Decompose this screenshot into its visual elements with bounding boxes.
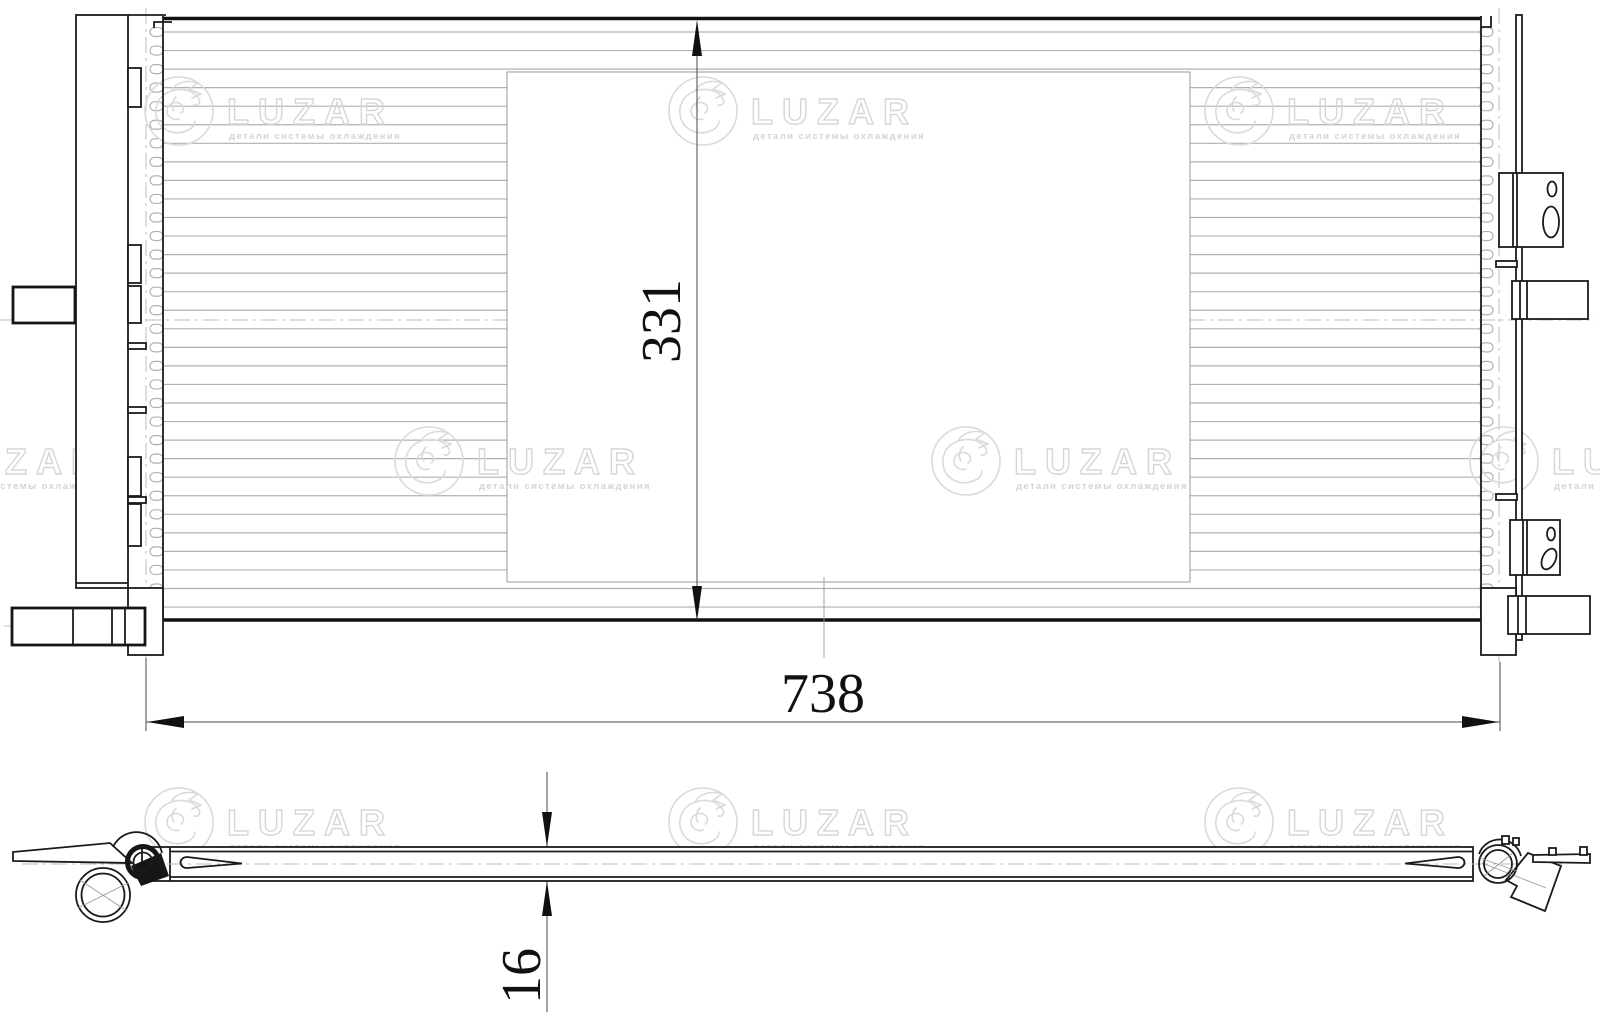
width-dim-label: 738 (781, 663, 865, 725)
dimension-thickness-16: 16 (491, 772, 553, 1012)
fin-cap-right (1480, 547, 1493, 556)
dimension-width-738: 738 (146, 658, 1500, 731)
fin-cap-right (1480, 343, 1493, 352)
condenser-drawing: LUZARдетали системы охлажденияLUZARдетал… (0, 0, 1600, 1019)
side-left-fitting (13, 832, 169, 922)
fin-cap-left (150, 417, 163, 426)
fin-cap-left (150, 547, 163, 556)
fin-cap-left (150, 194, 163, 203)
fin-cap-right (1480, 176, 1493, 185)
fin-cap-left (150, 361, 163, 370)
watermark-brand-text: LUZAR (1287, 91, 1454, 132)
fin-cap-right (1480, 380, 1493, 389)
watermark-brand-text: LUZAR (751, 802, 918, 843)
fin-cap-left (150, 528, 163, 537)
side-right-fitting (1479, 836, 1590, 911)
fin-cap-right (1480, 213, 1493, 222)
fin-cap-left (150, 510, 163, 519)
fin-cap-left (150, 473, 163, 482)
fin-cap-left (150, 269, 163, 278)
fin-cap-right (1480, 157, 1493, 166)
fin-cap-left (150, 65, 163, 74)
right-bracket-mid (1512, 281, 1588, 319)
right-bracket-bottom (1508, 596, 1590, 634)
fin-cap-right (1480, 528, 1493, 537)
watermark-tagline-text: детали системы охлаждения (753, 131, 925, 142)
watermark-brand-text: LUZAR (227, 91, 394, 132)
left-clips (128, 68, 146, 546)
fin-cap-right (1480, 232, 1493, 241)
fin-cap-left (150, 436, 163, 445)
watermark-tagline-text: детали системы охлаждения (1016, 481, 1188, 492)
fin-cap-left (150, 157, 163, 166)
fin-cap-right (1480, 83, 1493, 92)
left-mount-plate (76, 15, 128, 588)
left-lower-pipe (12, 608, 145, 645)
right-bracket-upper (1499, 173, 1563, 247)
watermark-tagline-text: детали системы охлаждения (1554, 481, 1600, 492)
fin-cap-left (150, 324, 163, 333)
fin-cap-right (1480, 250, 1493, 259)
fin-cap-left (150, 454, 163, 463)
watermark-tagline-text: детали системы охлаждения (479, 481, 651, 492)
watermark-brand-text: LUZAR (751, 91, 918, 132)
fin-cap-left (150, 399, 163, 408)
fin-cap-left (150, 176, 163, 185)
fin-cap-right (1480, 269, 1493, 278)
fin-cap-right (1480, 139, 1493, 148)
fin-cap-left (150, 213, 163, 222)
watermark-brand-text: LUZAR (227, 802, 394, 843)
fin-cap-right (1480, 417, 1493, 426)
watermark-brand-text: LUZAR (1287, 802, 1454, 843)
technical-drawing-page: LUZARдетали системы охлажденияLUZARдетал… (0, 0, 1600, 1019)
watermark-tagline-text: детали системы охлаждения (1289, 131, 1461, 142)
watermark: LUZARдетали системы охлаждения (1205, 788, 1461, 856)
fin-cap-left (150, 46, 163, 55)
thickness-dim-label: 16 (491, 948, 553, 1004)
fin-cap-right (1480, 361, 1493, 370)
watermark: LUZARдетали системы охлаждения (145, 788, 401, 856)
fin-cap-right (1480, 287, 1493, 296)
blank-center-panel (507, 72, 1190, 582)
fin-cap-right (1480, 46, 1493, 55)
watermark-tagline-text: детали системы охлаждения (229, 131, 401, 142)
fin-cap-right (1480, 565, 1493, 574)
fin-cap-left (150, 232, 163, 241)
fin-cap-right (1480, 399, 1493, 408)
watermark-brand-text: LUZAR (1552, 441, 1600, 482)
watermark-brand-text: LUZAR (1014, 441, 1181, 482)
fin-cap-left (150, 287, 163, 296)
fin-cap-right (1480, 65, 1493, 74)
fin-cap-left (150, 28, 163, 37)
right-bracket-lower (1510, 520, 1560, 575)
fin-cap-left (150, 565, 163, 574)
fin-cap-right (1480, 194, 1493, 203)
watermark-brand-text: LUZAR (477, 441, 644, 482)
fin-cap-left (150, 250, 163, 259)
height-dim-label: 331 (631, 279, 693, 363)
fin-cap-right (1480, 510, 1493, 519)
fin-cap-left (150, 343, 163, 352)
fin-cap-left (150, 306, 163, 315)
watermark: LUZARдетали системы охлаждения (669, 788, 925, 856)
fin-cap-right (1480, 120, 1493, 129)
fin-cap-left (150, 491, 163, 500)
fin-cap-right (1480, 102, 1493, 111)
left-upper-pipe (13, 287, 75, 323)
fin-cap-right (1480, 306, 1493, 315)
fin-cap-right (1480, 324, 1493, 333)
fin-cap-left (150, 380, 163, 389)
fin-cap-right (1480, 28, 1493, 37)
